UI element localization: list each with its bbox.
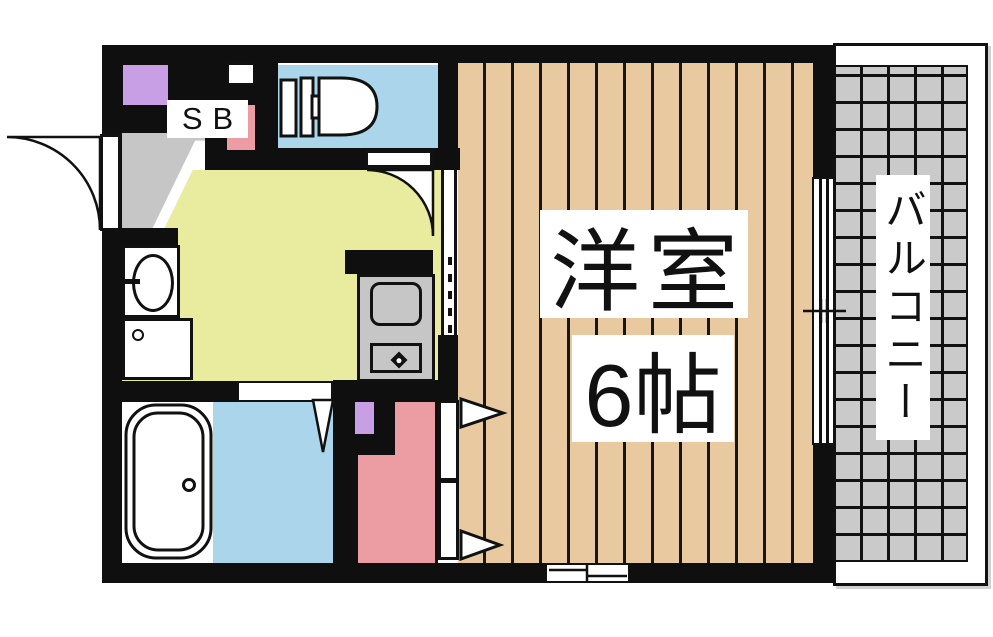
entry-door-swing-arc xyxy=(7,137,100,230)
bathroom-opening xyxy=(237,381,333,402)
toilet-door-leaf xyxy=(365,150,433,168)
bathroom-floor xyxy=(213,402,333,563)
balcony-label: バルコニー xyxy=(876,175,930,440)
wall-bottom xyxy=(102,563,833,583)
kitchen-stove xyxy=(370,343,422,373)
burner-icon xyxy=(391,352,408,369)
entry-genkan xyxy=(122,133,207,228)
wall-toilet-right xyxy=(438,45,458,148)
wall-kitchen-bottom-right xyxy=(333,380,443,402)
shoe-box-cabinet xyxy=(123,65,168,105)
wall-genkan-stub xyxy=(122,228,178,245)
toilet-room-floor xyxy=(278,65,438,148)
washer-drain-icon xyxy=(132,329,144,341)
kitchen-sink xyxy=(370,282,422,326)
kitchen-unit xyxy=(357,274,435,382)
sliding-door-panel-bottom xyxy=(438,480,459,560)
pipe-space-purple xyxy=(355,402,374,434)
main-room-size-label: 6帖 xyxy=(572,335,734,442)
kitchen-room-opening xyxy=(441,170,457,255)
floorplan-canvas: バルコニー xyxy=(0,0,993,637)
washbasin xyxy=(122,245,180,318)
washroom-floor-upper xyxy=(395,402,435,455)
shoe-box-label: SB xyxy=(167,100,248,138)
washbasin-tap xyxy=(123,279,140,284)
wall-kitchen-bottom-left xyxy=(122,381,237,402)
main-room-name-label: 洋室 xyxy=(540,210,748,318)
bottom-window xyxy=(545,563,630,583)
balcony-window xyxy=(812,177,835,445)
washroom-floor-lower xyxy=(358,455,435,563)
window-pane-line xyxy=(819,179,822,443)
kitchen-counter-bar xyxy=(345,250,433,274)
entry-door-leaf xyxy=(100,134,121,231)
dashed-line xyxy=(448,257,452,333)
window-pane-line xyxy=(826,179,829,443)
bathtub-zone xyxy=(122,402,213,563)
wall-left xyxy=(102,45,122,583)
sliding-door-panel-top xyxy=(438,400,459,481)
wall-top xyxy=(102,45,833,63)
kitchen-room-boundary-dashed xyxy=(441,255,457,335)
pipe-space-box xyxy=(227,63,255,85)
washing-machine-pan xyxy=(122,318,193,380)
